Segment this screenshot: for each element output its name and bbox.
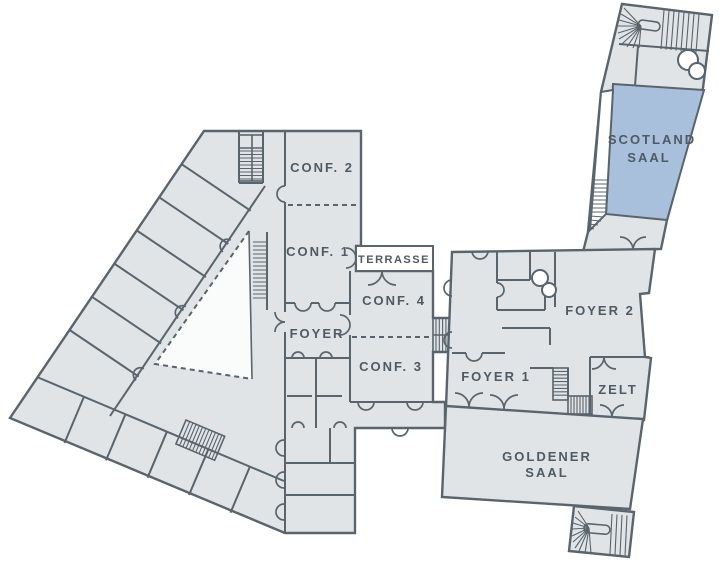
floorplan-svg: CONF. 2 CONF. 1 TERRASSE CONF. 4 FOYER C… bbox=[0, 0, 719, 561]
room-label-conf2: CONF. 2 bbox=[290, 160, 354, 175]
room-label-scotland-saal-2: SAAL bbox=[627, 150, 670, 165]
room-label-foyer2: FOYER 2 bbox=[565, 303, 635, 318]
room-label-conf1: CONF. 1 bbox=[286, 244, 350, 259]
room-label-foyer1: FOYER 1 bbox=[461, 369, 531, 384]
room-label-goldener-saal-1: GOLDENER bbox=[502, 449, 592, 464]
room-label-conf3: CONF. 3 bbox=[359, 359, 423, 374]
spiral-stairs-south-icon bbox=[569, 506, 634, 557]
room-label-conf4: CONF. 4 bbox=[362, 293, 426, 308]
room-label-scotland-saal-1: SCOTLAND bbox=[608, 132, 696, 147]
room-label-zelt: ZELT bbox=[598, 382, 638, 397]
stairs-courtyard-icon bbox=[253, 242, 267, 298]
room-label-foyer: FOYER bbox=[290, 326, 345, 341]
room-label-terrasse: TERRASSE bbox=[358, 254, 430, 266]
room-cutout2 bbox=[542, 283, 556, 297]
room-label-goldener-saal-2: SAAL bbox=[525, 465, 568, 480]
floorplan-canvas: CONF. 2 CONF. 1 TERRASSE CONF. 4 FOYER C… bbox=[0, 0, 719, 561]
